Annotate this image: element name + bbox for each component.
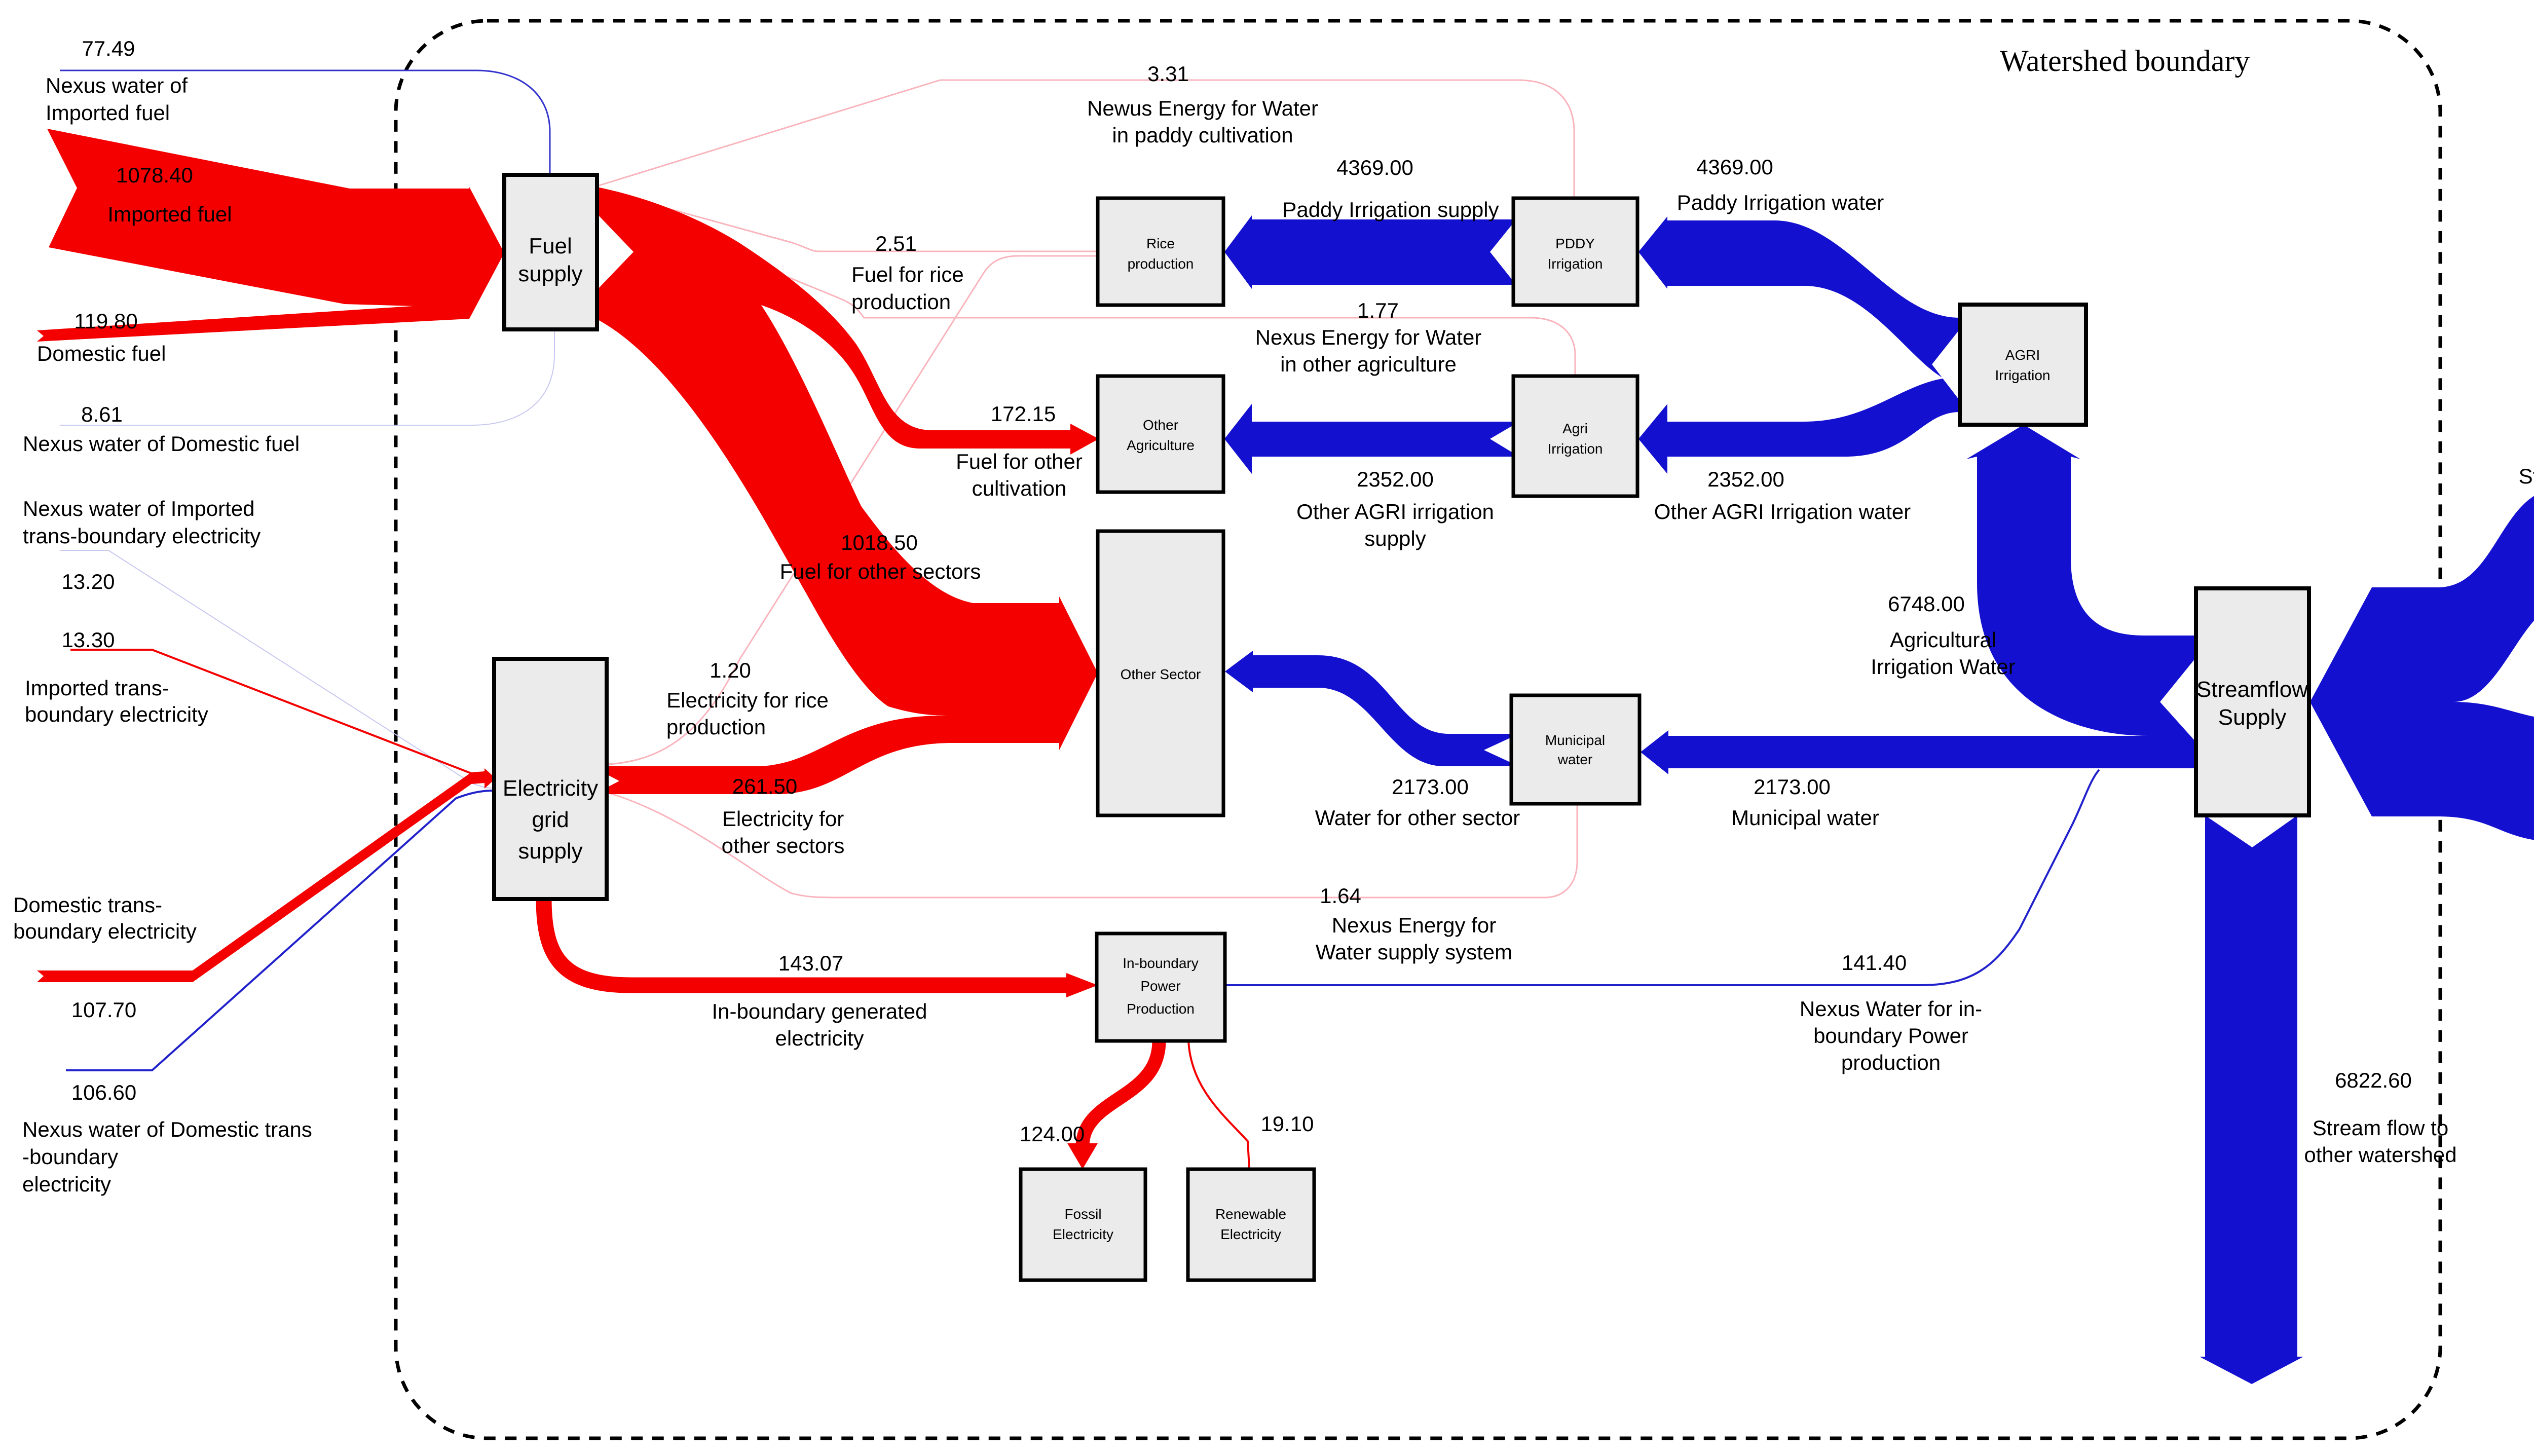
svg-text:2173.00: 2173.00 — [1754, 775, 1831, 799]
svg-text:water: water — [1557, 752, 1592, 767]
svg-text:In-boundary generated: In-boundary generated — [712, 999, 927, 1023]
svg-text:boundary electricity: boundary electricity — [13, 919, 197, 943]
svg-text:8.61: 8.61 — [81, 402, 123, 426]
svg-text:Production: Production — [1127, 1001, 1195, 1017]
svg-text:1.20: 1.20 — [710, 658, 751, 682]
svg-text:143.07: 143.07 — [778, 951, 843, 975]
svg-text:Agricultural: Agricultural — [1890, 628, 1996, 652]
svg-text:Fuel: Fuel — [529, 234, 572, 258]
svg-text:Fuel for other sectors: Fuel for other sectors — [780, 559, 981, 583]
svg-text:Water supply system: Water supply system — [1316, 940, 1512, 964]
svg-text:Streamflow: Streamflow — [2196, 677, 2308, 702]
svg-text:Other AGRI Irrigation water: Other AGRI Irrigation water — [1654, 500, 1911, 524]
svg-text:Nexus water of Domestic fuel: Nexus water of Domestic fuel — [23, 432, 300, 456]
svg-text:Rice: Rice — [1146, 236, 1175, 251]
svg-text:Paddy Irrigation supply: Paddy Irrigation supply — [1282, 198, 1499, 221]
svg-text:Irrigation: Irrigation — [1995, 367, 2051, 383]
svg-text:Storage Streamflow: Storage Streamflow — [2519, 464, 2534, 488]
svg-text:Electricity: Electricity — [1220, 1226, 1281, 1242]
svg-text:2352.00: 2352.00 — [1707, 467, 1784, 491]
svg-text:3.31: 3.31 — [1147, 62, 1189, 86]
svg-text:production: production — [666, 715, 766, 739]
svg-text:Electricity for rice: Electricity for rice — [666, 688, 829, 712]
svg-text:Fossil: Fossil — [1064, 1206, 1101, 1222]
svg-text:Nexus Water for in-: Nexus Water for in- — [1800, 997, 1982, 1021]
svg-text:Nexus water of Domestic trans: Nexus water of Domestic trans — [22, 1117, 312, 1141]
svg-text:production: production — [1841, 1051, 1941, 1074]
svg-text:107.70: 107.70 — [71, 998, 136, 1022]
svg-text:Electricity: Electricity — [503, 776, 598, 801]
svg-text:1018.50: 1018.50 — [841, 531, 918, 554]
svg-text:Supply: Supply — [2218, 705, 2287, 730]
svg-text:Nexus Energy for Water: Nexus Energy for Water — [1255, 325, 1482, 349]
svg-text:Irrigation: Irrigation — [1548, 256, 1603, 272]
svg-text:production: production — [851, 290, 951, 314]
svg-text:77.49: 77.49 — [82, 36, 135, 60]
svg-text:106.60: 106.60 — [71, 1080, 136, 1104]
svg-text:in other agriculture: in other agriculture — [1280, 352, 1457, 376]
svg-text:Paddy Irrigation water: Paddy Irrigation water — [1677, 191, 1884, 214]
svg-text:cultivation: cultivation — [972, 476, 1067, 500]
svg-text:Municipal water: Municipal water — [1731, 806, 1879, 830]
svg-text:Electricity for: Electricity for — [722, 807, 844, 831]
svg-text:172.15: 172.15 — [991, 402, 1056, 426]
svg-text:13.20: 13.20 — [61, 570, 115, 593]
svg-text:Municipal: Municipal — [1545, 732, 1605, 748]
svg-text:In-boundary: In-boundary — [1123, 955, 1198, 971]
svg-text:electricity: electricity — [22, 1172, 111, 1196]
svg-text:Newus Energy for Water: Newus Energy for Water — [1087, 96, 1318, 120]
svg-text:Renewable: Renewable — [1215, 1206, 1286, 1222]
svg-text:6748.00: 6748.00 — [1888, 592, 1965, 616]
svg-text:Imported fuel: Imported fuel — [107, 202, 232, 226]
svg-text:other sectors: other sectors — [722, 834, 845, 857]
svg-text:Other AGRI irrigation: Other AGRI irrigation — [1296, 500, 1494, 524]
svg-text:in paddy cultivation: in paddy cultivation — [1112, 123, 1293, 147]
svg-text:Electricity: Electricity — [1053, 1226, 1113, 1242]
svg-text:Nexus Energy for: Nexus Energy for — [1332, 913, 1496, 937]
svg-text:6822.60: 6822.60 — [2335, 1068, 2412, 1092]
svg-text:grid: grid — [532, 807, 569, 832]
svg-text:Fuel for rice: Fuel for rice — [851, 263, 964, 286]
svg-text:AGRI: AGRI — [2005, 347, 2040, 363]
svg-text:Domestic trans-: Domestic trans- — [13, 893, 162, 917]
svg-text:Other Sector: Other Sector — [1121, 666, 1201, 682]
svg-text:Imported trans-: Imported trans- — [25, 676, 169, 700]
svg-text:supply: supply — [1364, 527, 1426, 550]
svg-text:supply: supply — [518, 839, 582, 864]
svg-text:2352.00: 2352.00 — [1357, 467, 1434, 491]
svg-text:Power: Power — [1140, 978, 1180, 994]
svg-text:electricity: electricity — [775, 1026, 864, 1050]
svg-text:Domestic fuel: Domestic fuel — [37, 342, 166, 365]
svg-text:Agriculture: Agriculture — [1127, 437, 1195, 453]
svg-text:4369.00: 4369.00 — [1696, 155, 1773, 179]
svg-text:1078.40: 1078.40 — [116, 163, 193, 187]
svg-text:Nexus water of: Nexus water of — [46, 73, 188, 97]
svg-text:1.64: 1.64 — [1320, 884, 1361, 908]
svg-text:4369.00: 4369.00 — [1336, 156, 1413, 179]
svg-text:141.40: 141.40 — [1842, 951, 1907, 975]
svg-text:production: production — [1128, 256, 1194, 272]
svg-text:119.80: 119.80 — [74, 309, 137, 333]
svg-text:124.00: 124.00 — [1020, 1122, 1085, 1146]
svg-text:2173.00: 2173.00 — [1392, 775, 1469, 799]
svg-text:13.30: 13.30 — [61, 628, 115, 652]
svg-text:Watershed boundary: Watershed boundary — [2000, 44, 2250, 78]
svg-text:other watershed: other watershed — [2304, 1143, 2456, 1167]
svg-text:PDDY: PDDY — [1555, 236, 1595, 251]
svg-text:Nexus water of Imported: Nexus water of Imported — [23, 497, 255, 520]
svg-text:supply: supply — [518, 262, 582, 286]
svg-text:trans-boundary electricity: trans-boundary electricity — [23, 524, 260, 548]
svg-text:261.50: 261.50 — [732, 774, 797, 798]
svg-text:Agri: Agri — [1562, 421, 1588, 436]
svg-text:-boundary: -boundary — [22, 1145, 118, 1169]
svg-text:Irrigation Water: Irrigation Water — [1871, 655, 2016, 679]
svg-text:Irrigation: Irrigation — [1548, 441, 1603, 457]
svg-text:1.77: 1.77 — [1357, 298, 1399, 322]
svg-text:19.10: 19.10 — [1260, 1112, 1314, 1136]
svg-text:boundary electricity: boundary electricity — [25, 702, 208, 726]
svg-text:2.51: 2.51 — [875, 232, 917, 255]
svg-text:Imported fuel: Imported fuel — [46, 101, 170, 125]
svg-text:Water for other sector: Water for other sector — [1315, 806, 1520, 830]
svg-text:boundary Power: boundary Power — [1813, 1024, 1968, 1048]
svg-text:Stream flow to: Stream flow to — [2313, 1116, 2448, 1140]
svg-text:Other: Other — [1143, 417, 1178, 433]
svg-text:Fuel for other: Fuel for other — [956, 450, 1083, 473]
